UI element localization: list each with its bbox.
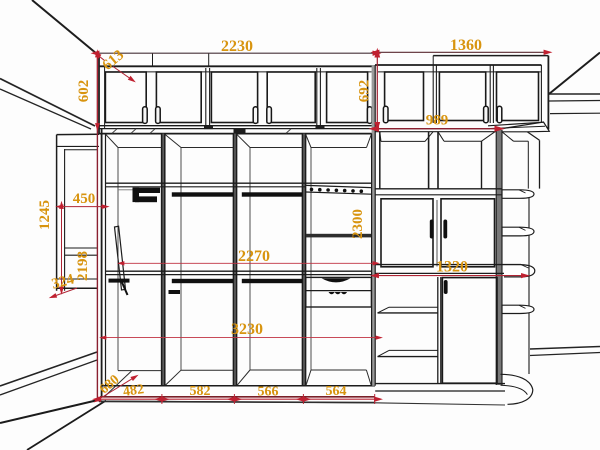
svg-text:2270: 2270 xyxy=(238,248,270,265)
svg-text:2198: 2198 xyxy=(75,251,91,281)
svg-text:2300: 2300 xyxy=(350,209,366,239)
svg-text:566: 566 xyxy=(258,385,279,400)
svg-text:1320: 1320 xyxy=(436,259,468,276)
svg-text:989: 989 xyxy=(426,113,449,129)
svg-text:2230: 2230 xyxy=(221,38,253,55)
svg-text:1245: 1245 xyxy=(37,200,53,230)
svg-text:692: 692 xyxy=(357,80,373,103)
svg-text:1360: 1360 xyxy=(450,37,482,54)
svg-text:602: 602 xyxy=(76,80,92,103)
svg-text:450: 450 xyxy=(73,191,96,207)
svg-text:582: 582 xyxy=(190,384,211,399)
svg-text:482: 482 xyxy=(122,382,145,400)
svg-text:3230: 3230 xyxy=(231,321,263,338)
svg-text:564: 564 xyxy=(326,384,347,399)
